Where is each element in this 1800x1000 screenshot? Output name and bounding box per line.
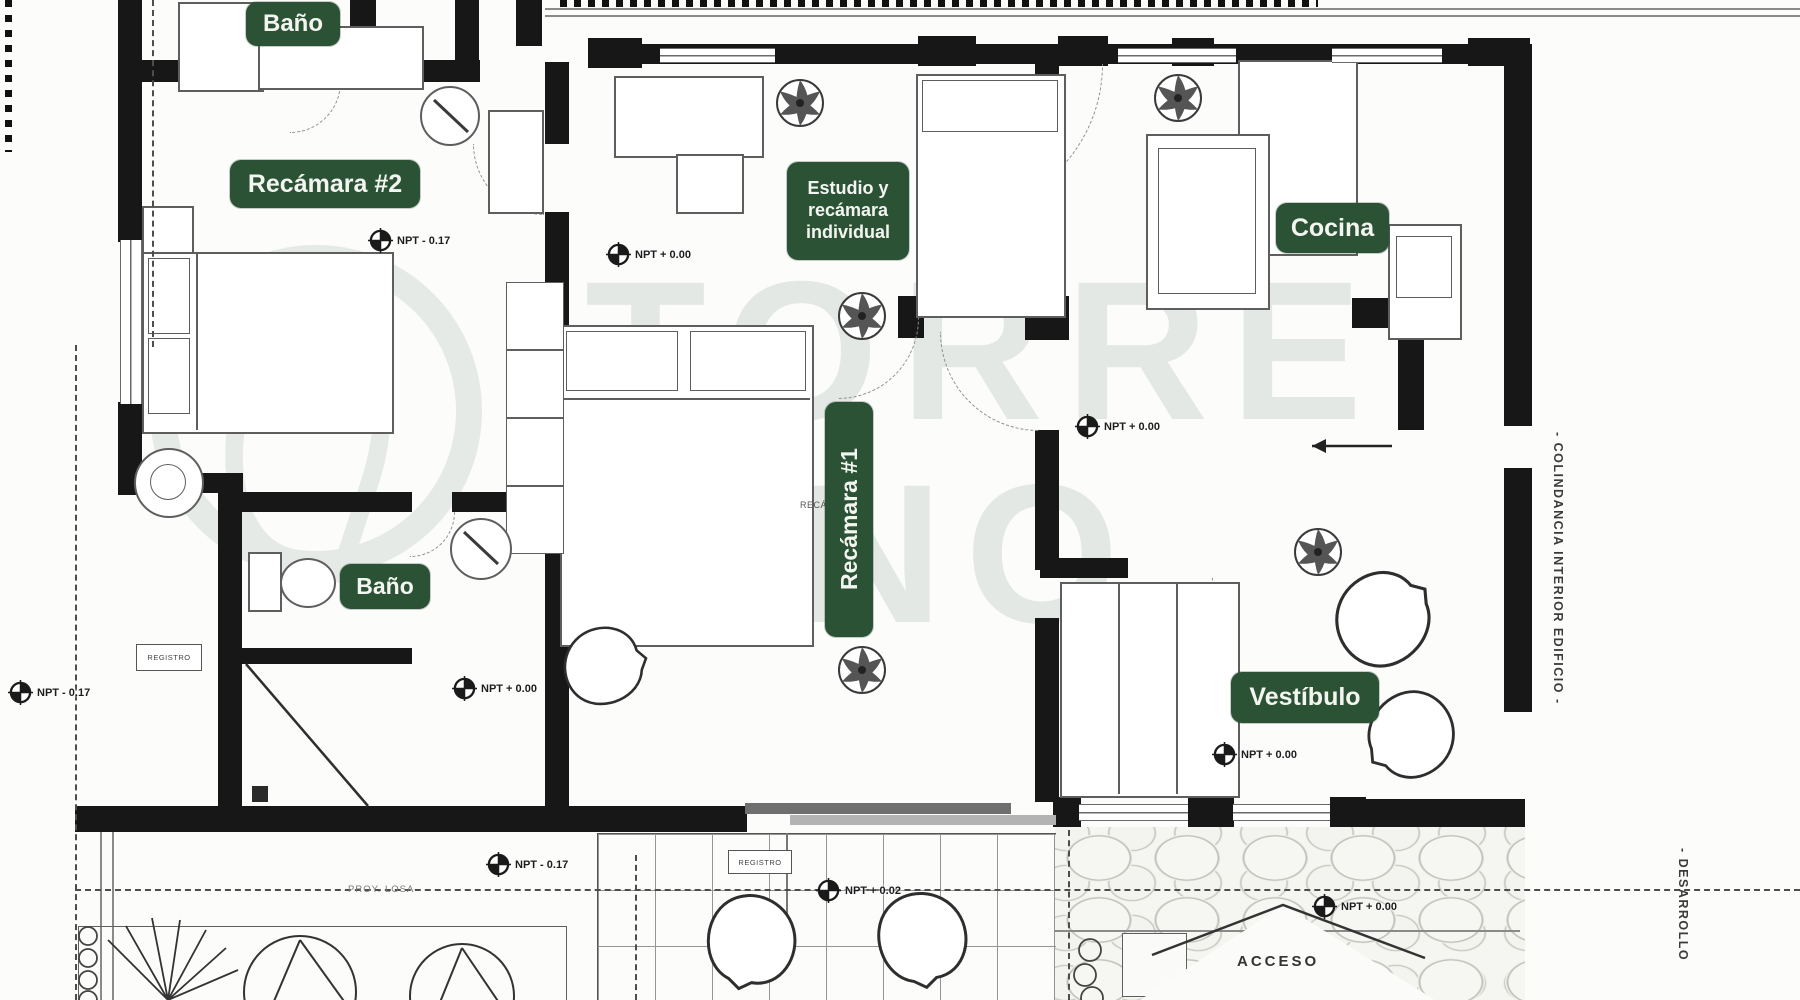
wall-jamb	[918, 36, 976, 66]
toilet-tank	[248, 552, 282, 612]
wall	[1504, 44, 1532, 426]
npt-level-marker: NPT + 0.00	[452, 676, 537, 701]
window	[1079, 804, 1188, 821]
sliding-door	[745, 803, 1011, 814]
prov-losa-label: PROY. LOSA	[348, 884, 414, 895]
wardrobe	[488, 110, 544, 214]
left-boundary-ticks	[5, 0, 12, 152]
site-line	[545, 8, 1800, 10]
registro-label: REGISTRO	[147, 653, 190, 662]
acceso-label: ACCESO	[1237, 953, 1319, 970]
closet-line	[1176, 582, 1178, 794]
wall	[118, 0, 142, 242]
dashed-property-line	[75, 345, 77, 1000]
npt-crosshair-icon	[486, 852, 511, 877]
window	[1118, 48, 1236, 63]
room-label-estudio: Estudio yrecámaraindividual	[787, 162, 909, 260]
room-label-bano-2: Baño	[340, 564, 430, 609]
room-label-recamara-2: Recámara #2	[230, 160, 420, 208]
shower-drain	[252, 786, 268, 802]
wardrobe-module	[506, 350, 564, 418]
npt-level-text: NPT + 0.00	[481, 683, 537, 695]
desk	[614, 76, 764, 158]
npt-level-marker: NPT - 0.17	[368, 228, 450, 253]
wall	[545, 62, 569, 144]
wall	[242, 648, 412, 664]
fridge-inner	[1158, 148, 1256, 294]
desk-drawer	[676, 154, 744, 214]
registro-box: REGISTRO	[136, 644, 202, 671]
room-label-vestibulo: Vestíbulo	[1231, 672, 1379, 723]
pillow	[148, 258, 190, 334]
floor-plan: TORRE UNO	[0, 0, 1800, 1000]
wall	[237, 492, 412, 512]
window	[120, 240, 142, 404]
patio-grid	[597, 833, 1056, 1000]
room-label-cocina: Cocina	[1276, 203, 1389, 253]
site-line	[545, 15, 1800, 17]
toilet-bowl	[280, 558, 336, 608]
room-label-text: Vestíbulo	[1249, 682, 1360, 713]
sink	[450, 518, 512, 580]
wall	[218, 492, 242, 832]
npt-crosshair-icon	[1312, 894, 1337, 919]
npt-crosshair-icon	[816, 878, 841, 903]
desarrollo-note: - DESARROLLO	[1676, 848, 1690, 1000]
npt-level-text: NPT + 0.02	[845, 885, 901, 897]
wall	[1035, 430, 1059, 570]
stove-inner	[1396, 236, 1452, 298]
npt-crosshair-icon	[8, 680, 33, 705]
wall-jamb	[1058, 36, 1108, 66]
wall	[516, 0, 542, 46]
top-boundary-ticks	[560, 0, 1318, 7]
npt-level-text: NPT - 0.17	[515, 859, 568, 871]
wardrobe-module	[506, 418, 564, 486]
npt-level-text: NPT - 0.17	[37, 687, 90, 699]
wall-jamb	[588, 38, 642, 68]
window	[1233, 804, 1330, 821]
wall-column	[1188, 797, 1234, 827]
registro-label: REGISTRO	[738, 858, 781, 867]
npt-level-marker: NPT + 0.02	[816, 878, 901, 903]
bed-line	[560, 398, 810, 400]
nightstand	[142, 206, 194, 254]
dashed-property-line	[152, 0, 154, 347]
npt-level-marker: NPT + 0.00	[1212, 742, 1297, 767]
site-line	[1055, 930, 1520, 932]
npt-level-marker: NPT - 0.17	[8, 680, 90, 705]
room-label-text: Cocina	[1291, 213, 1374, 244]
npt-level-text: NPT + 0.00	[1341, 901, 1397, 913]
npt-level-text: NPT + 0.00	[1241, 749, 1297, 761]
door-swing-arc	[410, 512, 455, 557]
room-label-text: individual	[806, 222, 890, 244]
npt-crosshair-icon	[368, 228, 393, 253]
wall	[1398, 326, 1424, 430]
registro-box: REGISTRO	[728, 850, 792, 874]
planter-border	[78, 926, 567, 1000]
pillow	[566, 331, 678, 391]
boiler-inner	[150, 464, 186, 500]
wall-column	[1330, 797, 1366, 827]
window	[660, 48, 775, 63]
colindancia-note: - COLINDANCIA INTERIOR EDIFICIO -	[1551, 432, 1565, 802]
npt-level-marker: NPT + 0.00	[1312, 894, 1397, 919]
wardrobe-module	[506, 486, 564, 554]
sink	[420, 86, 480, 146]
wall-column	[1053, 797, 1081, 827]
npt-level-marker: NPT + 0.00	[606, 242, 691, 267]
npt-level-text: NPT + 0.00	[1104, 421, 1160, 433]
bed-line	[196, 252, 198, 430]
npt-level-text: NPT + 0.00	[635, 249, 691, 261]
pillow	[690, 331, 806, 391]
wall	[75, 806, 747, 832]
room-label-text: Baño	[263, 9, 323, 38]
sliding-door	[790, 815, 1056, 825]
closet-line	[1118, 582, 1120, 794]
wall	[1035, 618, 1059, 802]
wall	[1504, 468, 1532, 712]
room-label-text: Recámara #2	[248, 169, 402, 200]
pillow	[148, 338, 190, 414]
npt-level-marker: NPT + 0.00	[1075, 414, 1160, 439]
wall	[1040, 558, 1128, 578]
shower-diagonal	[246, 664, 368, 806]
npt-level-text: NPT - 0.17	[397, 235, 450, 247]
room-label-text: Recámara #1	[835, 449, 863, 591]
wall	[455, 0, 479, 62]
room-label-text: Baño	[356, 572, 414, 600]
npt-crosshair-icon	[452, 676, 477, 701]
dashed-projection-line	[75, 889, 1800, 891]
npt-crosshair-icon	[1212, 742, 1237, 767]
room-label-text: Estudio y	[807, 178, 888, 200]
window	[1332, 48, 1442, 63]
npt-level-marker: NPT - 0.17	[486, 852, 568, 877]
dashed-property-line	[635, 855, 637, 1000]
wardrobe-module	[506, 282, 564, 350]
npt-crosshair-icon	[606, 242, 631, 267]
room-label-recamara-1: Recámara #1	[825, 402, 873, 637]
pillow	[922, 80, 1058, 132]
room-label-bano-1: Baño	[246, 2, 340, 46]
room-label-text: recámara	[808, 200, 888, 222]
drain-line	[786, 833, 788, 933]
npt-crosshair-icon	[1075, 414, 1100, 439]
dashed-property-line	[1068, 830, 1070, 1000]
registro-pit	[1122, 933, 1187, 997]
wall	[1362, 799, 1525, 827]
